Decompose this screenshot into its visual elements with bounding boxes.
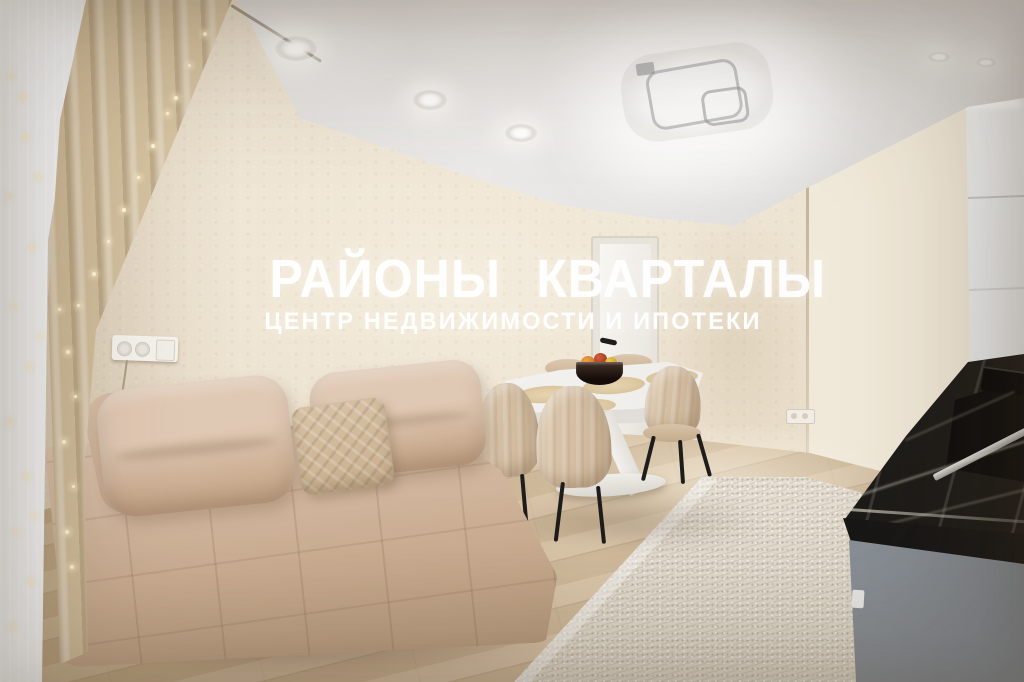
recessed-spotlight [413, 90, 447, 110]
sofa-back-cushion [94, 372, 298, 519]
table-shadow [500, 498, 770, 546]
watermark: РАЙОНЫ КВАРТАЛЫ ЦЕНТР НЕДВИЖИМОСТИ И ИПО… [251, 252, 775, 335]
watermark-brand: РАЙОНЫ КВАРТАЛЫ [269, 252, 756, 306]
wall-socket-strip [112, 335, 179, 362]
recessed-spotlight [976, 58, 996, 67]
knitted-pillow [290, 396, 395, 496]
cabinet-handle-notch [852, 590, 865, 609]
socket-outlet [117, 341, 133, 357]
photo-real-estate-interior: РАЙОНЫ КВАРТАЛЫ ЦЕНТР НЕДВИЖИМОСТИ И ИПО… [0, 0, 1024, 682]
light-switch [156, 339, 176, 361]
light-ornament-tab [636, 62, 655, 76]
socket-outlet [135, 342, 151, 358]
light-ornament-square [700, 85, 751, 127]
recessed-spotlight [928, 52, 950, 62]
recessed-spotlight [505, 124, 537, 142]
recessed-spotlight [275, 36, 317, 61]
watermark-tagline: ЦЕНТР НЕДВИЖИМОСТИ И ИПОТЕКИ [256, 309, 770, 335]
